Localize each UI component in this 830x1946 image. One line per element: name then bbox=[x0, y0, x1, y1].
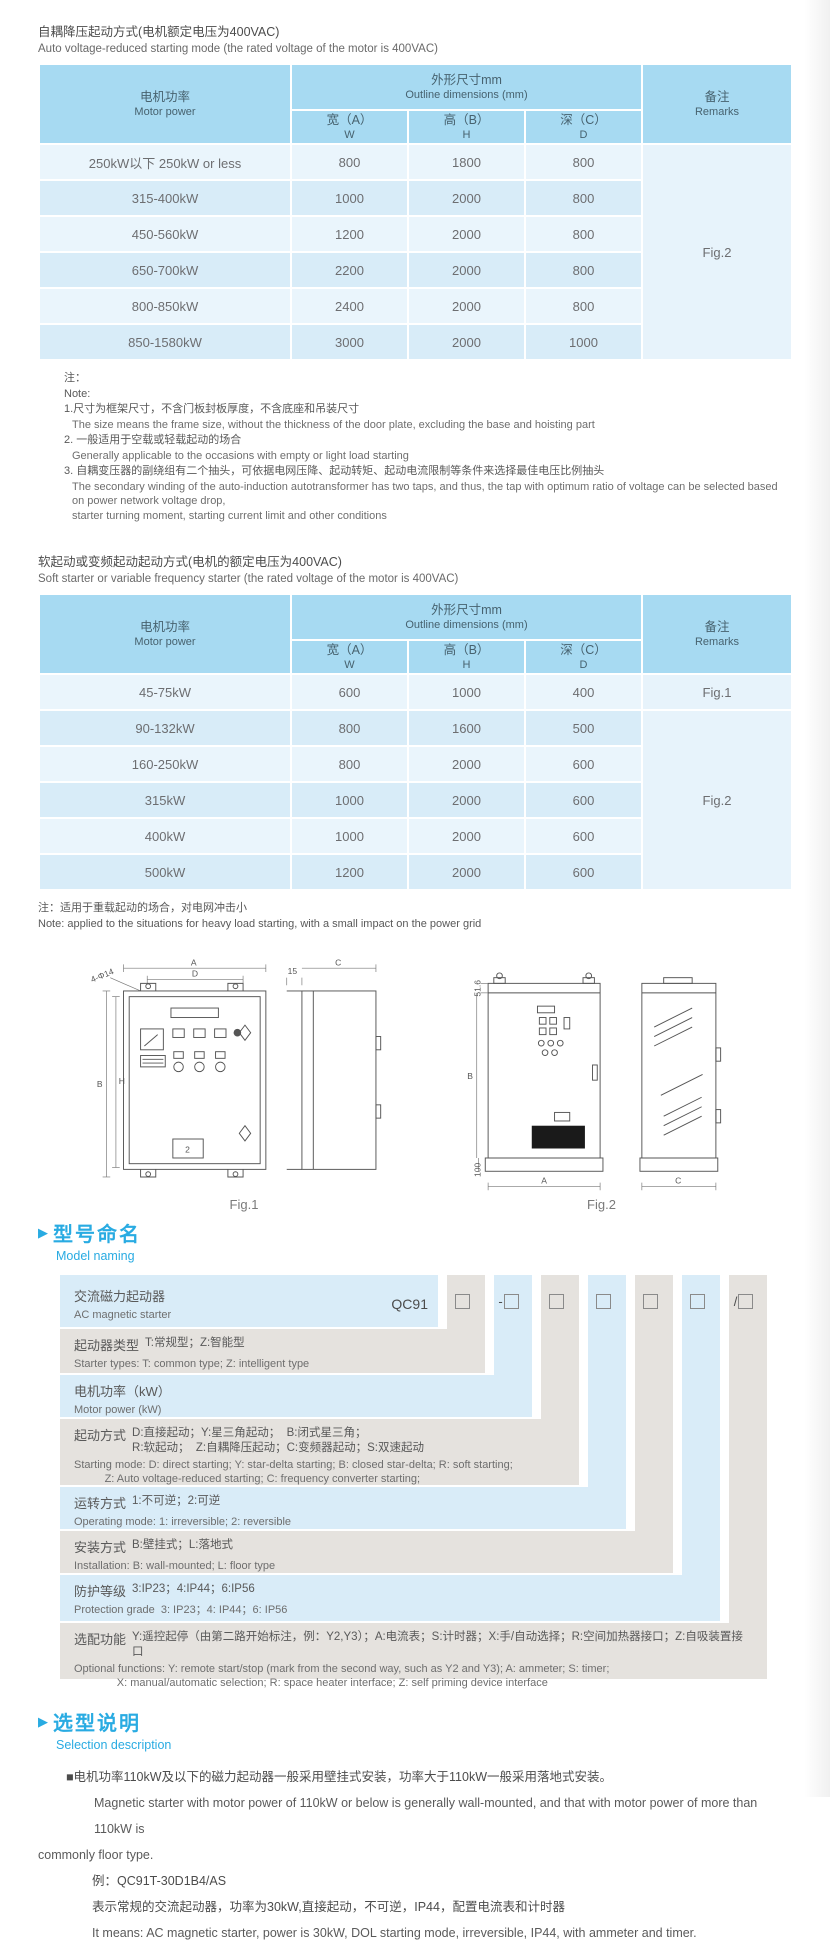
model-row-protection-grade: 防护等级3:IP23；4:IP44；6:IP56 Protection grad… bbox=[60, 1575, 720, 1621]
table-row: 250kW以下 250kW or less 800 1800 800 Fig.2 bbox=[39, 144, 792, 180]
note-label-en: Note: bbox=[64, 387, 790, 402]
col-header-width: 宽（A）W bbox=[291, 110, 408, 144]
svg-text:15: 15 bbox=[287, 966, 297, 976]
col-header-depth: 深（C）D bbox=[525, 110, 642, 144]
figure-1: A D 4-Φ14 B H bbox=[77, 953, 412, 1212]
col-header-width: 宽（A）W bbox=[291, 640, 408, 674]
note-item-en: The secondary winding of the auto-induct… bbox=[64, 480, 790, 524]
model-naming-heading-en: Model naming bbox=[56, 1247, 790, 1265]
col-header-depth: 深（C）D bbox=[525, 640, 642, 674]
model-row-operating-mode: 运转方式1:不可逆；2:可逆 Operating mode: 1: irreve… bbox=[60, 1487, 626, 1529]
note-item-zh: 3. 自耦变压器的副绕组有二个抽头，可依据电网压降、起动转矩、起动电流限制等条件… bbox=[64, 464, 790, 479]
col-header-motor-power: 电机功率 Motor power bbox=[39, 64, 291, 144]
selection-para-zh: ■电机功率110kW及以下的磁力起动器一般采用壁挂式安装，功率大于110kW一般… bbox=[38, 1764, 790, 1790]
remark-cell: Fig.2 bbox=[642, 144, 792, 360]
col-header-remarks: 备注 Remarks bbox=[642, 594, 792, 674]
col-header-remarks: 备注 Remarks bbox=[642, 64, 792, 144]
model-row-installation: 安装方式B:壁挂式；L:落地式 Installation: B: wall-mo… bbox=[60, 1531, 673, 1573]
svg-text:C: C bbox=[675, 1176, 681, 1186]
selection-para-en-line2: commonly floor type. bbox=[38, 1842, 790, 1868]
catalog-page: 自耦降压起动方式(电机额定电压为400VAC) Auto voltage-red… bbox=[0, 0, 830, 1946]
model-row-starter-type: 起动器类型T:常规型；Z:智能型 Starter types: T: commo… bbox=[60, 1329, 485, 1373]
model-row-starting-mode: 起动方式D:直接起动；Y:星三角起动； B:闭式星三角； R:软起动； Z:自耦… bbox=[60, 1419, 579, 1485]
remark-cell: Fig.1 bbox=[642, 674, 792, 710]
code-column-strip bbox=[729, 1275, 767, 1623]
selection-heading-zh: 选型说明 bbox=[53, 1707, 141, 1736]
figures-row: A D 4-Φ14 B H bbox=[38, 953, 790, 1212]
svg-text:A: A bbox=[541, 1176, 547, 1186]
svg-text:B: B bbox=[467, 1071, 473, 1081]
code-box-square bbox=[504, 1294, 519, 1309]
svg-text:B: B bbox=[96, 1079, 102, 1089]
fig2-caption: Fig.2 bbox=[452, 1197, 752, 1212]
svg-text:4-Φ14: 4-Φ14 bbox=[89, 966, 115, 984]
triangle-bullet-icon: ▶ bbox=[38, 1225, 48, 1241]
auto-dimensions-table: 电机功率 Motor power 外形尺寸mm Outline dimensio… bbox=[38, 63, 793, 361]
selection-para-en-line1: Magnetic starter with motor power of 110… bbox=[38, 1790, 790, 1842]
code-box: - bbox=[485, 1275, 532, 1327]
model-row-motor-power: 电机功率（kW） Motor power (kW) bbox=[60, 1375, 532, 1417]
model-naming-heading: ▶ 型号命名 Model naming bbox=[38, 1218, 790, 1265]
section-soft-title-en: Soft starter or variable frequency start… bbox=[38, 571, 790, 587]
code-box-square bbox=[738, 1294, 753, 1309]
auto-notes: 注： Note: 1.尺寸为框架尺寸，不含门板封板厚度，不含底座和吊装尺寸 Th… bbox=[64, 371, 790, 523]
selection-example-code: 例：QC91T-30D1B4/AS bbox=[92, 1868, 790, 1894]
section-auto-title-en: Auto voltage-reduced starting mode (the … bbox=[38, 41, 790, 57]
section-soft-title-zh: 软起动或变频起动起动方式(电机的额定电压为400VAC) bbox=[38, 554, 790, 571]
note-item-zh: 1.尺寸为框架尺寸，不含门板封板厚度，不含底座和吊装尺寸 bbox=[64, 402, 790, 417]
model-row-optional-functions: 选配功能Y:遥控起停（由第二路开始标注，例：Y2,Y3）；A:电流表；S:计时器… bbox=[60, 1623, 767, 1679]
svg-text:51.6: 51.6 bbox=[472, 980, 482, 997]
model-naming-table: - / 交流磁力起动器 AC magnetic starter QC91 起动器… bbox=[60, 1275, 770, 1679]
selection-example-zh: 表示常规的交流起动器，功率为30kW,直接起动，不可逆，IP44，配置电流表和计… bbox=[92, 1894, 790, 1920]
col-header-height: 高（B）H bbox=[408, 110, 525, 144]
svg-text:100: 100 bbox=[472, 1162, 482, 1176]
model-naming-heading-zh: 型号命名 bbox=[53, 1218, 141, 1247]
table-row: 45-75kW600 1000400 Fig.1 bbox=[39, 674, 792, 710]
fig1-caption: Fig.1 bbox=[77, 1197, 412, 1212]
table-row: 90-132kW800 1600500 Fig.2 bbox=[39, 710, 792, 746]
fig2-floor-type-drawing: 51.6 B 100 A C bbox=[452, 953, 752, 1195]
fig1-wall-mounted-drawing: A D 4-Φ14 B H bbox=[77, 953, 412, 1195]
col-header-height: 高（B）H bbox=[408, 640, 525, 674]
note-item-en: Generally applicable to the occasions wi… bbox=[64, 449, 790, 464]
model-code-boxes: - / bbox=[438, 1275, 767, 1327]
code-box-square bbox=[643, 1294, 658, 1309]
note-label-zh: 注： bbox=[64, 371, 790, 386]
code-box bbox=[626, 1275, 673, 1327]
svg-text:C: C bbox=[335, 957, 341, 967]
code-box bbox=[532, 1275, 579, 1327]
note-item-zh: 2. 一般适用于空载或轻载起动的场合 bbox=[64, 433, 790, 448]
code-box bbox=[673, 1275, 720, 1327]
code-box-square bbox=[549, 1294, 564, 1309]
code-box: / bbox=[720, 1275, 767, 1327]
note-item-en: The size means the frame size, without t… bbox=[64, 418, 790, 433]
remark-cell: Fig.2 bbox=[642, 710, 792, 890]
col-header-motor-power: 电机功率 Motor power bbox=[39, 594, 291, 674]
col-header-outline-dimensions: 外形尺寸mm Outline dimensions (mm) bbox=[291, 64, 642, 110]
code-box bbox=[579, 1275, 626, 1327]
triangle-bullet-icon: ▶ bbox=[38, 1714, 48, 1730]
section-auto-title: 自耦降压起动方式(电机额定电压为400VAC) Auto voltage-red… bbox=[38, 24, 790, 57]
section-auto-title-zh: 自耦降压起动方式(电机额定电压为400VAC) bbox=[38, 24, 790, 41]
code-box-square bbox=[690, 1294, 705, 1309]
figure-2: 51.6 B 100 A C Fig.2 bbox=[452, 953, 752, 1212]
soft-dimensions-table: 电机功率 Motor power 外形尺寸mm Outline dimensio… bbox=[38, 593, 793, 891]
selection-heading: ▶ 选型说明 Selection description bbox=[38, 1707, 790, 1754]
section-soft-title: 软起动或变频起动起动方式(电机的额定电压为400VAC) Soft starte… bbox=[38, 554, 790, 587]
selection-example-en: It means: AC magnetic starter, power is … bbox=[92, 1920, 790, 1946]
soft-note: 注：适用于重载起动的场合，对电网冲击小 Note: applied to the… bbox=[38, 901, 790, 931]
model-row-ac-starter: 交流磁力起动器 AC magnetic starter QC91 bbox=[60, 1275, 438, 1327]
svg-text:H: H bbox=[118, 1076, 124, 1086]
code-box-square bbox=[596, 1294, 611, 1309]
note-en: Note: applied to the situations for heav… bbox=[38, 917, 790, 932]
selection-body: ■电机功率110kW及以下的磁力起动器一般采用壁挂式安装，功率大于110kW一般… bbox=[38, 1764, 790, 1946]
code-box bbox=[438, 1275, 485, 1327]
page-edge-shadow bbox=[804, 0, 830, 1797]
selection-heading-en: Selection description bbox=[56, 1736, 790, 1754]
svg-text:D: D bbox=[191, 969, 197, 979]
svg-text:2: 2 bbox=[185, 1144, 190, 1154]
note-zh: 注：适用于重载起动的场合，对电网冲击小 bbox=[38, 901, 790, 916]
code-box-square bbox=[455, 1294, 470, 1309]
model-code-prefix: QC91 bbox=[391, 1296, 428, 1312]
col-header-outline-dimensions: 外形尺寸mm Outline dimensions (mm) bbox=[291, 594, 642, 640]
svg-text:A: A bbox=[190, 957, 196, 967]
